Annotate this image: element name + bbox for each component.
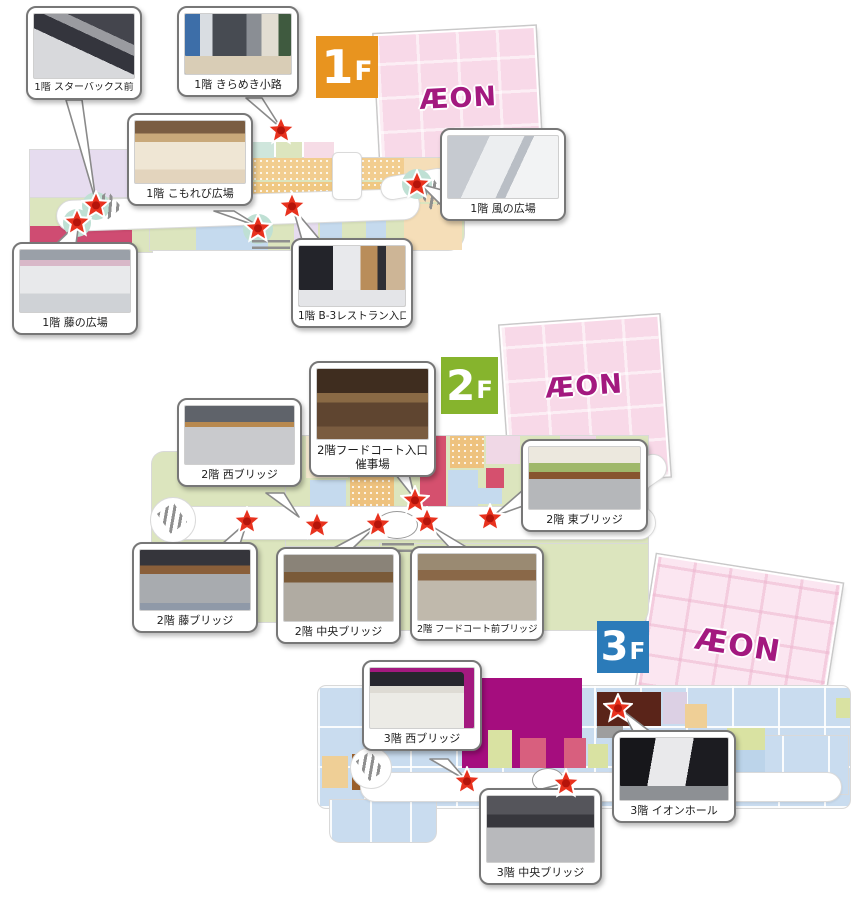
photo-1f-kaze — [447, 135, 559, 199]
photo-3f-chuo-bridge — [486, 795, 595, 863]
photo-1f-b3-restaurant — [298, 245, 406, 307]
callout-2f-fuji-bridge[interactable]: 2階 藤ブリッジ — [132, 542, 258, 633]
location-star-icon[interactable] — [232, 506, 262, 536]
callout-3f-aeon-hall[interactable]: 3階 イオンホール — [612, 730, 736, 823]
badge-suffix: F — [476, 378, 493, 402]
photo-2f-foodcourt-entrance — [316, 368, 429, 440]
map-tile — [486, 436, 520, 464]
location-star-icon[interactable] — [475, 503, 505, 533]
photo-1f-kirameki — [184, 13, 292, 75]
location-star-icon[interactable] — [452, 766, 482, 796]
location-star-icon[interactable] — [400, 485, 430, 515]
badge-number: 3 — [601, 627, 629, 667]
location-star-icon[interactable] — [302, 510, 332, 540]
callout-1f-komorebi[interactable]: 1階 こもれび広場 — [127, 113, 253, 206]
callout-3f-chuo-bridge[interactable]: 3階 中央ブリッジ — [479, 788, 602, 885]
callout-label: 1階 B-3レストラン入口 — [298, 310, 406, 323]
callout-2f-foodcourt-front-bridge[interactable]: 2階 フードコート前ブリッジ — [410, 546, 544, 641]
callout-1f-starbucks[interactable]: 1階 スターバックス前 — [26, 6, 142, 100]
map-tile — [330, 800, 436, 842]
map-tile — [488, 730, 512, 768]
map-tile — [564, 738, 586, 768]
location-star-icon[interactable] — [243, 213, 273, 243]
map-tile — [322, 756, 348, 788]
callout-label: 1階 スターバックス前 — [33, 82, 135, 95]
callout-label: 2階フードコート入口催事場 — [316, 443, 429, 472]
location-star-icon[interactable] — [402, 169, 432, 199]
callout-2f-nishi-bridge[interactable]: 2階 西ブリッジ — [177, 398, 302, 487]
photo-1f-starbucks — [33, 13, 135, 79]
walkway — [332, 152, 362, 200]
photo-2f-higashi-bridge — [528, 446, 641, 510]
photo-1f-komorebi — [134, 120, 246, 184]
callout-1f-b3-restaurant[interactable]: 1階 B-3レストラン入口 — [291, 238, 413, 328]
aeon-logo-3f: ÆON — [644, 613, 831, 676]
badge-suffix: F — [630, 640, 646, 663]
map-tile — [304, 142, 334, 158]
callout-1f-fuji[interactable]: 1階 藤の広場 — [12, 242, 138, 335]
location-star-icon[interactable] — [266, 115, 296, 145]
photo-2f-chuo-bridge — [283, 554, 394, 622]
aeon-logo-1f: ÆON — [378, 79, 537, 118]
callout-label: 1階 こもれび広場 — [134, 187, 246, 201]
aeon-logo-2f: ÆON — [505, 366, 663, 408]
map-tile — [836, 698, 850, 718]
badge-number: 1 — [321, 44, 353, 90]
callout-label: 3階 西ブリッジ — [369, 732, 475, 746]
photo-2f-nishi-bridge — [184, 405, 295, 465]
photo-2f-fuji-bridge — [139, 549, 251, 611]
callout-label: 2階 フードコート前ブリッジ — [417, 624, 537, 636]
location-star-icon[interactable] — [62, 207, 92, 237]
badge-number: 2 — [446, 365, 475, 407]
map-tile — [478, 488, 502, 504]
callout-2f-higashi-bridge[interactable]: 2階 東ブリッジ — [521, 439, 648, 532]
map-tile — [685, 704, 707, 728]
map-tile — [450, 436, 484, 468]
callout-label: 1階 藤の広場 — [19, 316, 131, 330]
floor-badge-1f: 1F — [316, 36, 378, 98]
photo-3f-nishi-bridge — [369, 667, 475, 729]
location-star-icon[interactable] — [603, 693, 633, 723]
callout-label: 2階 西ブリッジ — [184, 468, 295, 482]
photo-2f-foodcourt-front-bridge — [417, 553, 537, 621]
callout-label: 3階 中央ブリッジ — [486, 866, 595, 880]
map-tile — [588, 744, 608, 768]
callout-2f-foodcourt-entrance[interactable]: 2階フードコート入口催事場 — [309, 361, 436, 477]
callout-1f-kirameki[interactable]: 1階 きらめき小路 — [177, 6, 299, 97]
callout-label: 1階 風の広場 — [447, 202, 559, 216]
callout-label: 3階 イオンホール — [619, 804, 729, 818]
mall-floor-map-page: ÆON ÆON ÆON — [0, 0, 862, 898]
photo-3f-aeon-hall — [619, 737, 729, 801]
photo-1f-fuji — [19, 249, 131, 313]
callout-label: 1階 きらめき小路 — [184, 78, 292, 92]
map-tile — [520, 738, 546, 768]
callout-1f-kaze[interactable]: 1階 風の広場 — [440, 128, 566, 221]
location-star-icon[interactable] — [277, 191, 307, 221]
floor-badge-2f: 2F — [441, 357, 498, 414]
callout-label: 2階 東ブリッジ — [528, 513, 641, 527]
map-tile — [310, 480, 346, 508]
map-tile — [252, 158, 404, 180]
callout-label: 2階 藤ブリッジ — [139, 614, 251, 628]
location-star-icon[interactable] — [551, 768, 581, 798]
floor-badge-3f: 3F — [597, 621, 649, 673]
callout-2f-chuo-bridge[interactable]: 2階 中央ブリッジ — [276, 547, 401, 644]
callout-3f-nishi-bridge[interactable]: 3階 西ブリッジ — [362, 660, 482, 751]
callout-label: 2階 中央ブリッジ — [283, 625, 394, 639]
map-tile — [486, 468, 504, 488]
map-tile — [448, 470, 478, 506]
location-star-icon[interactable] — [363, 509, 393, 539]
map-tile — [663, 692, 687, 724]
badge-suffix: F — [354, 59, 372, 86]
